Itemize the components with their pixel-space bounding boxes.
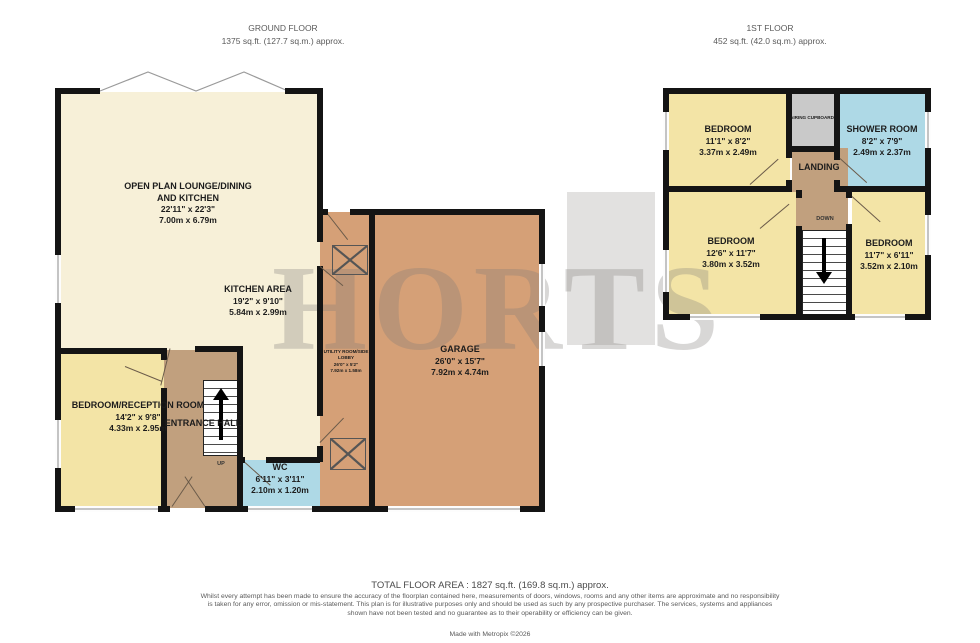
- floorplan-page: GROUND FLOOR 1375 sq.ft. (127.7 sq.m.) a…: [0, 0, 980, 643]
- room-dim-metric: 7.92m x 4.74m: [390, 367, 530, 378]
- stairs-arrow: [822, 238, 826, 274]
- wall: [796, 226, 802, 316]
- label-landing: LANDING: [786, 162, 852, 174]
- window: [75, 506, 158, 512]
- room-dim-imperial: 26'0" x 15'7": [390, 356, 530, 367]
- wall: [539, 366, 545, 508]
- room-name: GARAGE: [390, 344, 530, 356]
- label-wc: WC 6'11" x 3'11" 2.10m x 1.20m: [238, 462, 322, 496]
- room-dim-imperial: 22'11" x 22'3": [88, 204, 288, 215]
- room-name: SHOWER ROOM: [834, 124, 930, 136]
- wall: [786, 180, 792, 192]
- stairs-arrow-head: [213, 388, 229, 400]
- room-dim-imperial: 19'2" x 9'10": [178, 296, 338, 307]
- first-floor-title: 1ST FLOOR: [620, 22, 920, 35]
- wall: [55, 506, 75, 512]
- wall: [760, 314, 855, 320]
- window: [539, 332, 545, 366]
- first-floor-area: 452 sq.ft. (42.0 sq.m.) approx.: [620, 35, 920, 48]
- room-dim-metric: 2.10m x 1.20m: [238, 485, 322, 496]
- ground-floor-area: 1375 sq.ft. (127.7 sq.m.) approx.: [133, 35, 433, 48]
- label-garage: GARAGE 26'0" x 15'7" 7.92m x 4.74m: [390, 344, 530, 378]
- room-name: BEDROOM: [666, 124, 790, 136]
- wall: [539, 306, 545, 332]
- window: [248, 506, 312, 512]
- label-bedroom-left: BEDROOM 12'6" x 11'7" 3.80m x 3.52m: [666, 236, 796, 270]
- wall: [195, 346, 243, 352]
- window: [539, 264, 545, 306]
- room-dim-imperial: 11'1" x 8'2": [666, 136, 790, 147]
- room-name: LANDING: [786, 162, 852, 174]
- room-dim-metric: 3.80m x 3.52m: [666, 259, 796, 270]
- disclaimer-text: Whilst every attempt has been made to en…: [200, 593, 780, 618]
- bifold-door-icon: [96, 68, 292, 94]
- window: [55, 255, 61, 303]
- first-floor-header: 1ST FLOOR 452 sq.ft. (42.0 sq.m.) approx…: [620, 22, 920, 48]
- room-name: UTILITY ROOM/SIDE LOBBY: [318, 349, 374, 362]
- room-dim-metric: 5.84m x 2.99m: [178, 307, 338, 318]
- stairs-arrow-head: [816, 272, 832, 284]
- room-dim-metric: 3.37m x 2.49m: [666, 147, 790, 158]
- credit-text: Made with Metropix ©2026: [0, 631, 980, 638]
- stairs-down-label: DOWN: [800, 216, 850, 222]
- label-open-plan: OPEN PLAN LOUNGE/DINING AND KITCHEN 22'1…: [88, 181, 288, 226]
- wall: [350, 209, 545, 215]
- room-name: OPEN PLAN LOUNGE/DINING: [88, 181, 288, 193]
- label-entrance-hall: ENTRANCE HALL: [148, 418, 258, 430]
- room-dim-metric: 7.92m x 1.58m: [318, 368, 374, 374]
- room-dim-imperial: 11'7" x 6'11": [850, 250, 928, 261]
- room-name: AIRING CUPBOARD: [788, 115, 836, 121]
- room-dim-imperial: 6'11" x 3'11": [238, 474, 322, 485]
- room-dim-imperial: 8'2" x 7'9": [834, 136, 930, 147]
- room-name: BEDROOM: [850, 238, 928, 250]
- room-dim-metric: 3.52m x 2.10m: [850, 261, 928, 272]
- wall: [539, 212, 545, 264]
- room-name: BEDROOM: [666, 236, 796, 248]
- wall: [55, 88, 100, 94]
- wall: [663, 314, 690, 320]
- room-dim-metric: 2.49m x 2.37m: [834, 147, 930, 158]
- room-name: AND KITCHEN: [88, 193, 288, 205]
- wall: [55, 348, 167, 354]
- room-dim-metric: 7.00m x 6.79m: [88, 215, 288, 226]
- label-kitchen: KITCHEN AREA 19'2" x 9'10" 5.84m x 2.99m: [178, 284, 338, 318]
- room-name: BEDROOM/RECEPTION ROOM: [38, 400, 238, 412]
- wall: [786, 146, 840, 152]
- wall: [834, 180, 840, 192]
- room-name: ENTRANCE HALL: [148, 418, 258, 430]
- garage-door-opening: [388, 506, 520, 512]
- window: [855, 314, 905, 320]
- room-name: WC: [238, 462, 322, 474]
- label-utility: UTILITY ROOM/SIDE LOBBY 26'0" x 5'2" 7.9…: [318, 349, 374, 375]
- label-bedroom-right: BEDROOM 11'7" x 6'11" 3.52m x 2.10m: [850, 238, 928, 272]
- appliance-icon: [332, 245, 368, 275]
- wall: [905, 314, 931, 320]
- label-shower-room: SHOWER ROOM 8'2" x 7'9" 2.49m x 2.37m: [834, 124, 930, 158]
- label-airing-cupboard: AIRING CUPBOARD: [788, 115, 836, 121]
- wall: [317, 88, 323, 242]
- appliance-icon: [330, 438, 366, 470]
- stairs-up-label: UP: [203, 461, 239, 467]
- wall: [796, 190, 802, 198]
- wall: [663, 186, 786, 192]
- label-bedroom-front: BEDROOM 11'1" x 8'2" 3.37m x 2.49m: [666, 124, 790, 158]
- room-dim-imperial: 12'6" x 11'7": [666, 248, 796, 259]
- room-name: KITCHEN AREA: [178, 284, 338, 296]
- wall: [312, 506, 388, 512]
- ground-floor-header: GROUND FLOOR 1375 sq.ft. (127.7 sq.m.) a…: [133, 22, 433, 48]
- ground-floor-title: GROUND FLOOR: [133, 22, 433, 35]
- window: [690, 314, 760, 320]
- wall: [663, 88, 931, 94]
- total-floor-area: TOTAL FLOOR AREA : 1827 sq.ft. (169.8 sq…: [0, 580, 980, 591]
